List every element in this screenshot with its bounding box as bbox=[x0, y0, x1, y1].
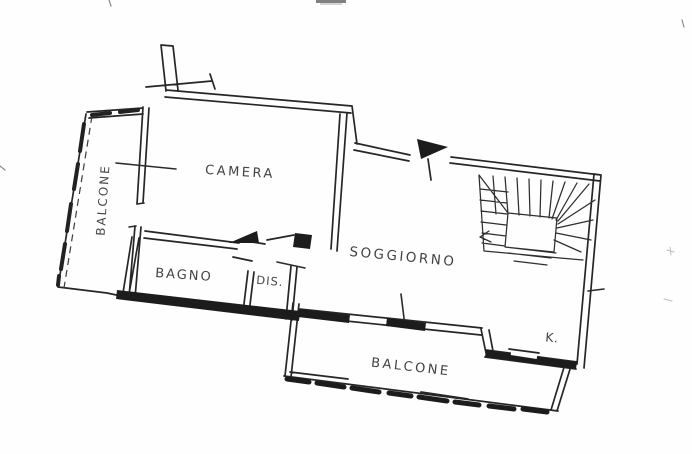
room-label-kitchen: K. bbox=[545, 329, 559, 345]
room-label-soggiorno: SOGGIORNO bbox=[349, 244, 457, 270]
staircase bbox=[479, 175, 595, 265]
room-labels: BALCONE CAMERA BAGNO DIS. SOGGIORNO K. B… bbox=[94, 163, 560, 380]
thick-wall-fills bbox=[116, 139, 577, 369]
room-label-camera: CAMERA bbox=[205, 163, 276, 182]
room-label-balcone-left: BALCONE bbox=[94, 164, 113, 236]
room-label-dis: DIS. bbox=[256, 273, 284, 289]
bottom-balcony-railing bbox=[287, 379, 547, 412]
floor-plan-drawing: BALCONE CAMERA BAGNO DIS. SOGGIORNO K. B… bbox=[0, 0, 692, 454]
scan-specks bbox=[0, 0, 684, 170]
room-label-bagno: BAGNO bbox=[155, 266, 214, 285]
room-label-balcone-bottom: BALCONE bbox=[370, 356, 451, 380]
scan-artifacts bbox=[0, 0, 684, 301]
staircase-lines bbox=[479, 175, 595, 265]
balcony-inner-dashed-line bbox=[64, 116, 92, 288]
scan-smudge-top bbox=[316, 0, 346, 3]
scan-smudge-top-faint bbox=[320, 3, 342, 5]
scan-faint-crosses bbox=[664, 247, 674, 301]
walls bbox=[58, 45, 604, 411]
floor-plan-scan: BALCONE CAMERA BAGNO DIS. SOGGIORNO K. B… bbox=[0, 0, 692, 454]
